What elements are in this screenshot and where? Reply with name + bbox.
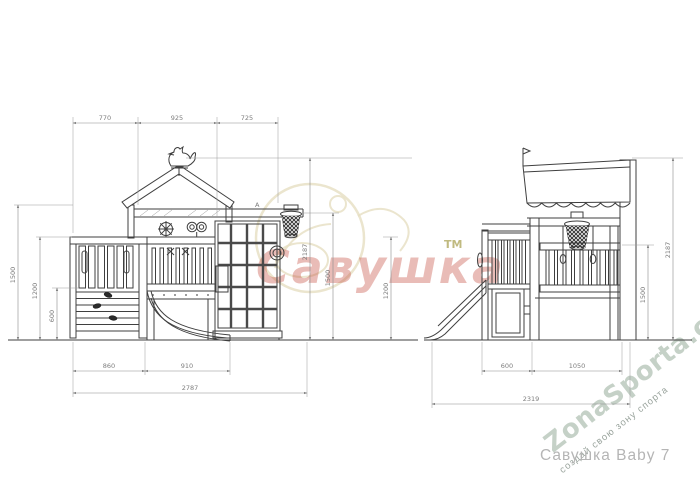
marker-a-label: A: [255, 201, 260, 209]
dimension-label: 2187: [301, 244, 309, 261]
binoculars-icon: [187, 222, 206, 237]
balusters: [152, 248, 212, 284]
tower-post-left: [128, 205, 134, 238]
climbing-wall: [70, 237, 147, 338]
screw-dots: [152, 294, 209, 296]
watermark-brand-emblem: Савушка ТМ: [256, 184, 505, 294]
center-post: [530, 218, 539, 340]
dimension-label: 2319: [523, 395, 540, 403]
climbing-holds: [93, 292, 118, 321]
dimension-label: 910: [181, 362, 193, 370]
dimension-label: 1500: [9, 267, 17, 284]
climbing-rungs: [76, 292, 139, 331]
dimension-label: 725: [241, 114, 253, 122]
steering-wheel-icon: [158, 221, 174, 237]
dimension-label: 1500: [639, 287, 647, 304]
technical-drawing-page: ZonaSporta.com создай свою зону спорта С…: [0, 0, 700, 489]
deck-leg-left: [147, 299, 154, 340]
scalloped-valance: [527, 203, 630, 207]
basketball-hoop-icon: [281, 205, 302, 238]
dimension-label: 1050: [569, 362, 586, 370]
watermark-brand-tm: ТМ: [444, 238, 462, 251]
dimension-label: 770: [99, 114, 111, 122]
drawing-caption: Савушка Baby 7: [540, 447, 670, 465]
dimension-label: 600: [48, 310, 56, 322]
dimension-label: 2787: [182, 384, 199, 392]
top-beam: [134, 209, 303, 217]
grab-handles: [82, 251, 129, 273]
flag-pole-icon: [523, 148, 530, 166]
watermark-brand-text: Савушка: [256, 240, 505, 294]
drawing-canvas: Савушка ТМ: [0, 0, 700, 489]
dimension-label: 2187: [664, 242, 672, 259]
dimension-label: 1200: [31, 283, 39, 300]
crawl-door: [492, 289, 524, 337]
dimension-label: 1500: [324, 270, 332, 287]
side-beam: [527, 218, 620, 226]
canopy-roof: [523, 160, 630, 207]
dimension-label: 925: [171, 114, 183, 122]
deck-leg-right: [208, 299, 215, 340]
side-balusters: [546, 250, 617, 285]
dimension-label: 860: [103, 362, 115, 370]
dimension-label: 600: [501, 362, 513, 370]
dimension-label: 1200: [382, 283, 390, 300]
